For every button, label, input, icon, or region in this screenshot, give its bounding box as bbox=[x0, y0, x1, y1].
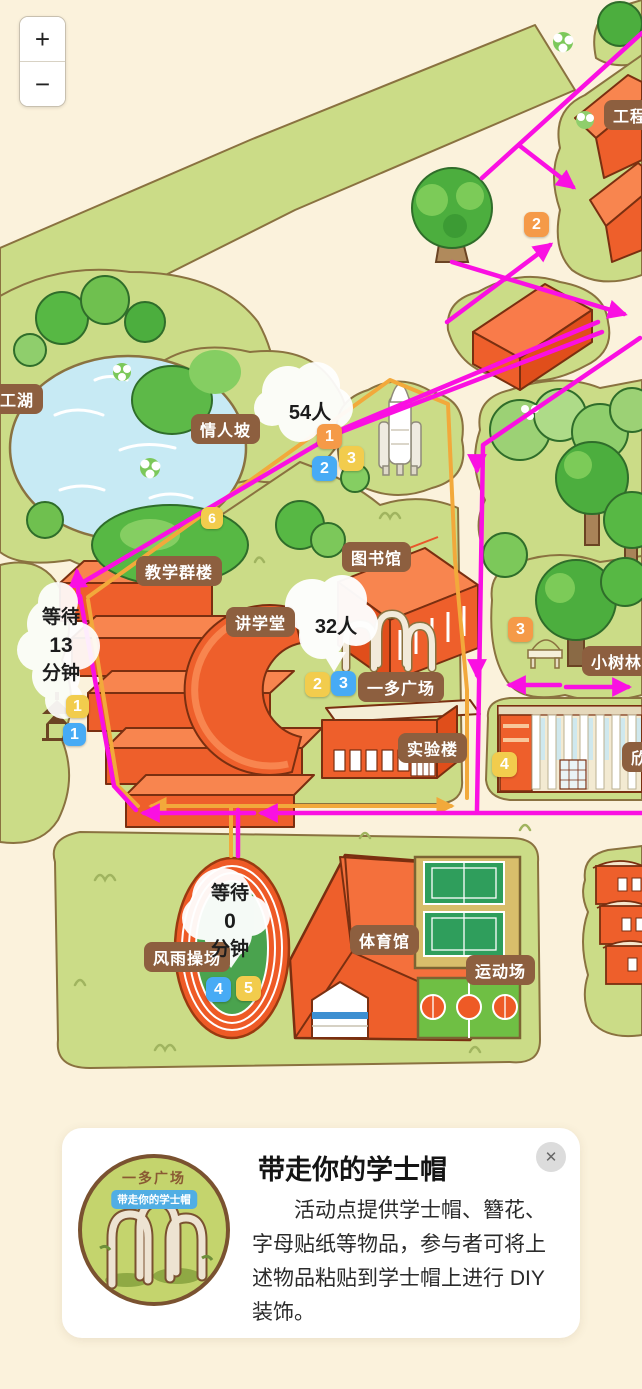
label-library: 图书馆 bbox=[342, 542, 411, 572]
label-grove: 小树林 bbox=[582, 646, 642, 676]
colonnade-building bbox=[498, 706, 642, 792]
close-icon[interactable]: ✕ bbox=[536, 1142, 566, 1172]
wait-time-playground[interactable]: 等待 0 分钟 bbox=[186, 880, 274, 964]
label-gymnasium: 体育馆 bbox=[350, 925, 419, 955]
zoom-out-button[interactable]: − bbox=[20, 62, 65, 106]
marker-badge-playground-4[interactable]: 4 bbox=[206, 977, 231, 1002]
marker-badge-grove-3[interactable]: 3 bbox=[508, 617, 533, 642]
marker-badge-rocket-2[interactable]: 2 bbox=[312, 456, 337, 481]
zoom-in-button[interactable]: + bbox=[20, 17, 65, 62]
label-teaching-complex: 教学群楼 bbox=[136, 556, 222, 586]
marker-badge-pavilion-y1[interactable]: 1 bbox=[66, 695, 89, 718]
label-lovers-slope: 情人坡 bbox=[191, 414, 260, 444]
marker-badge-xin-4[interactable]: 4 bbox=[492, 752, 517, 777]
wait-time-pavilion[interactable]: 等待 13 分钟 bbox=[18, 604, 104, 688]
marker-badge-path-6[interactable]: 6 bbox=[201, 507, 223, 529]
label-lecture-hall: 讲学堂 bbox=[226, 607, 295, 637]
label-sports-field: 运动场 bbox=[466, 955, 535, 985]
marker-badge-square-3[interactable]: 3 bbox=[331, 671, 356, 696]
marker-badge-pavilion-b1[interactable]: 1 bbox=[63, 723, 86, 746]
activity-card: 一多广场 带走你的学士帽 带走你的学士帽 活动点提供学士帽、簪花、字母贴纸等物品… bbox=[62, 1128, 580, 1338]
label-yiduo-square: 一多广场 bbox=[358, 672, 444, 702]
label-lake: 人工湖 bbox=[0, 384, 43, 414]
thumbnail-activity-badge: 带走你的学士帽 bbox=[111, 1190, 197, 1209]
marker-badge-playground-5[interactable]: 5 bbox=[236, 976, 261, 1001]
activity-description: 活动点提供学士帽、簪花、字母贴纸等物品，参与者可将上述物品粘贴到学士帽上进行 D… bbox=[252, 1194, 564, 1330]
marker-badge-rocket-1[interactable]: 1 bbox=[317, 424, 342, 449]
marker-badge-square-2[interactable]: 2 bbox=[305, 672, 330, 697]
marker-badge-rocket-3[interactable]: 3 bbox=[339, 446, 364, 471]
sports-courts bbox=[415, 857, 520, 1038]
marker-badge-north-2[interactable]: 2 bbox=[524, 212, 549, 237]
thumbnail-location-title: 一多广场 bbox=[82, 1168, 226, 1188]
activity-thumbnail: 一多广场 带走你的学士帽 bbox=[78, 1154, 230, 1306]
activity-title: 带走你的学士帽 bbox=[258, 1148, 447, 1187]
label-lab-building: 实验楼 bbox=[398, 733, 467, 763]
label-engineering: 工程 bbox=[604, 100, 642, 130]
crowd-count-lovers[interactable]: 54人 bbox=[272, 396, 348, 425]
label-xin-building: 欣 bbox=[622, 742, 642, 772]
crowd-count-square[interactable]: 32人 bbox=[294, 610, 378, 639]
zoom-control: + − bbox=[19, 16, 66, 107]
map-viewport[interactable]: + − 人工湖 情人坡 教学群楼 讲学堂 图书馆 一多广场 实验楼 工程 小树林… bbox=[0, 0, 642, 1389]
